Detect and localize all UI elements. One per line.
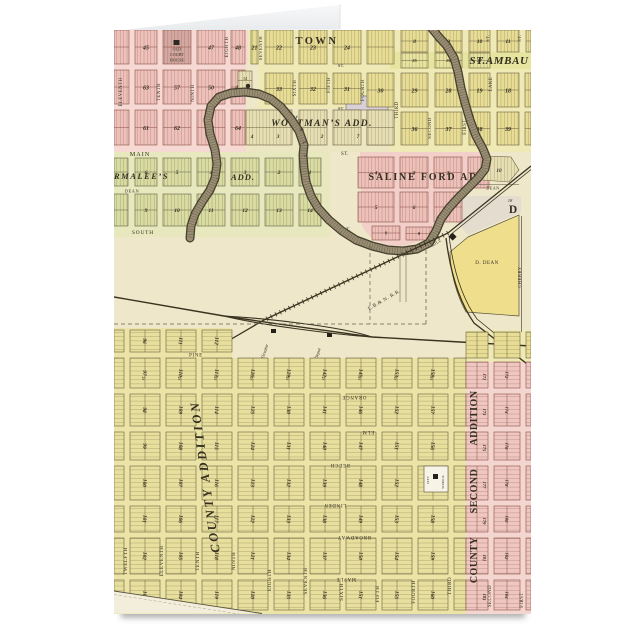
svg-text:30: 30 bbox=[377, 88, 384, 94]
svg-text:181: 181 bbox=[482, 554, 488, 561]
svg-text:ST.: ST. bbox=[394, 375, 398, 380]
svg-text:SEVENTH: SEVENTH bbox=[258, 36, 263, 61]
svg-text:39: 39 bbox=[504, 127, 511, 133]
svg-text:4: 4 bbox=[250, 134, 254, 140]
svg-text:131: 131 bbox=[285, 442, 292, 451]
svg-text:OLD: OLD bbox=[173, 47, 182, 52]
svg-text:21: 21 bbox=[251, 45, 258, 51]
svg-text:152: 152 bbox=[393, 406, 400, 415]
svg-text:ST.: ST. bbox=[517, 34, 522, 41]
svg-text:98: 98 bbox=[141, 407, 147, 413]
svg-text:LINDEN: LINDEN bbox=[324, 502, 347, 507]
svg-text:SEVENTH: SEVENTH bbox=[303, 567, 309, 594]
svg-text:135: 135 bbox=[285, 591, 292, 600]
svg-text:183: 183 bbox=[482, 593, 488, 601]
svg-text:180: 180 bbox=[504, 515, 510, 523]
svg-text:ST.: ST. bbox=[430, 375, 434, 380]
svg-text:COURT: COURT bbox=[170, 52, 185, 57]
svg-text:HOUSE: HOUSE bbox=[170, 58, 185, 63]
svg-text:11: 11 bbox=[505, 39, 510, 45]
svg-text:108: 108 bbox=[177, 442, 184, 451]
svg-text:ADD.: ADD. bbox=[230, 172, 255, 182]
svg-text:176: 176 bbox=[504, 442, 510, 450]
svg-text:FOURTH: FOURTH bbox=[411, 580, 417, 603]
svg-text:106: 106 bbox=[177, 515, 184, 524]
svg-text:7: 7 bbox=[357, 134, 360, 140]
svg-text:ST.: ST. bbox=[286, 375, 290, 380]
svg-text:182: 182 bbox=[504, 552, 510, 560]
svg-text:125: 125 bbox=[249, 406, 256, 415]
svg-text:64: 64 bbox=[235, 126, 241, 132]
svg-text:159: 159 bbox=[429, 552, 436, 561]
svg-text:10: 10 bbox=[496, 168, 502, 174]
svg-text:122: 122 bbox=[249, 515, 256, 524]
svg-text:TWELFTH: TWELFTH bbox=[123, 547, 129, 575]
svg-text:ADDITION: ADDITION bbox=[469, 390, 480, 445]
svg-text:37: 37 bbox=[445, 127, 453, 133]
svg-text:112: 112 bbox=[213, 337, 220, 346]
svg-text:33: 33 bbox=[275, 87, 282, 93]
svg-text:ST.: ST. bbox=[338, 63, 344, 68]
svg-text:123: 123 bbox=[249, 479, 256, 488]
svg-text:BROADWAY: BROADWAY bbox=[337, 534, 371, 539]
svg-text:NINTH: NINTH bbox=[231, 552, 237, 571]
svg-text:136: 136 bbox=[321, 591, 328, 600]
svg-text:RMALEE’S: RMALEE’S bbox=[113, 171, 169, 181]
svg-text:29: 29 bbox=[411, 88, 418, 94]
svg-text:63: 63 bbox=[143, 85, 149, 91]
svg-text:ST.: ST. bbox=[178, 375, 182, 380]
svg-text:148: 148 bbox=[357, 479, 364, 488]
svg-text:102: 102 bbox=[141, 552, 148, 561]
svg-text:ST.: ST. bbox=[250, 375, 254, 380]
svg-text:100: 100 bbox=[141, 479, 148, 488]
svg-text:158: 158 bbox=[429, 515, 436, 524]
svg-text:5: 5 bbox=[176, 170, 179, 176]
svg-text:3: 3 bbox=[276, 134, 280, 140]
svg-text:139: 139 bbox=[321, 479, 328, 488]
svg-text:SIXTH: SIXTH bbox=[339, 583, 345, 601]
svg-text:TENTH: TENTH bbox=[157, 83, 162, 101]
svg-text:138: 138 bbox=[321, 515, 328, 524]
svg-text:114: 114 bbox=[213, 406, 220, 415]
svg-text:ELEVENTH: ELEVENTH bbox=[119, 77, 124, 106]
svg-text:FOURTH: FOURTH bbox=[361, 79, 366, 101]
svg-text:31: 31 bbox=[343, 87, 350, 93]
svg-text:FIFTH: FIFTH bbox=[375, 586, 381, 603]
svg-text:10: 10 bbox=[174, 208, 180, 214]
svg-text:ST.AMBAU: ST.AMBAU bbox=[469, 55, 529, 67]
svg-text:137: 137 bbox=[321, 552, 328, 561]
svg-text:SECOND: SECOND bbox=[427, 117, 432, 139]
svg-text:45: 45 bbox=[142, 45, 149, 51]
svg-text:151: 151 bbox=[393, 442, 400, 451]
svg-text:ELM: ELM bbox=[362, 429, 375, 434]
svg-text:12: 12 bbox=[242, 208, 248, 214]
svg-text:D: D bbox=[509, 204, 517, 216]
svg-text:ST.: ST. bbox=[341, 152, 349, 157]
svg-text:2: 2 bbox=[320, 134, 324, 140]
svg-text:22: 22 bbox=[275, 45, 282, 51]
svg-text:6: 6 bbox=[413, 205, 416, 211]
svg-text:19: 19 bbox=[477, 88, 483, 94]
svg-text:179: 179 bbox=[482, 517, 488, 525]
svg-text:CHERRY: CHERRY bbox=[517, 266, 522, 288]
svg-text:107: 107 bbox=[177, 479, 184, 488]
svg-text:25: 25 bbox=[411, 58, 417, 63]
svg-text:ST.: ST. bbox=[214, 375, 218, 380]
svg-text:SOUTH: SOUTH bbox=[132, 230, 154, 236]
svg-text:18: 18 bbox=[508, 198, 513, 203]
svg-text:24: 24 bbox=[343, 45, 350, 51]
svg-text:171: 171 bbox=[482, 373, 488, 380]
svg-text:177: 177 bbox=[482, 481, 488, 489]
svg-text:EIGHTH: EIGHTH bbox=[225, 37, 230, 58]
svg-text:101: 101 bbox=[141, 515, 148, 524]
svg-text:149: 149 bbox=[357, 515, 364, 524]
svg-text:173: 173 bbox=[482, 408, 488, 416]
svg-text:LAKE: LAKE bbox=[489, 77, 494, 92]
svg-text:97: 97 bbox=[141, 370, 147, 376]
svg-text:TOWN: TOWN bbox=[295, 36, 338, 47]
svg-text:MAPLE: MAPLE bbox=[336, 576, 356, 581]
svg-text:115: 115 bbox=[213, 442, 220, 451]
svg-text:ST.: ST. bbox=[358, 375, 362, 380]
svg-text:11: 11 bbox=[208, 208, 213, 214]
svg-text:10: 10 bbox=[477, 39, 483, 45]
svg-text:THIRD: THIRD bbox=[447, 577, 453, 595]
svg-text:109: 109 bbox=[177, 406, 184, 415]
svg-text:50: 50 bbox=[208, 85, 214, 91]
svg-text:96: 96 bbox=[141, 338, 147, 344]
svg-text:34: 34 bbox=[243, 76, 247, 81]
svg-text:EIGHTH: EIGHTH bbox=[267, 569, 273, 591]
svg-text:32: 32 bbox=[309, 87, 316, 93]
svg-text:134: 134 bbox=[285, 552, 292, 561]
svg-text:SIXTH: SIXTH bbox=[293, 80, 298, 97]
svg-text:184: 184 bbox=[504, 591, 510, 599]
svg-text:28: 28 bbox=[445, 88, 452, 94]
svg-text:150: 150 bbox=[357, 552, 364, 561]
svg-text:SECOND: SECOND bbox=[488, 585, 493, 607]
svg-text:2: 2 bbox=[277, 170, 281, 176]
svg-text:157: 157 bbox=[429, 406, 436, 415]
svg-text:62: 62 bbox=[174, 126, 180, 132]
svg-text:13: 13 bbox=[276, 208, 282, 214]
svg-text:MAIN: MAIN bbox=[130, 151, 151, 158]
svg-text:104: 104 bbox=[177, 591, 184, 600]
svg-text:PINE: PINE bbox=[189, 354, 203, 359]
svg-text:FIFTH: FIFTH bbox=[327, 77, 332, 93]
svg-text:DEAN: DEAN bbox=[486, 186, 499, 191]
svg-text:121: 121 bbox=[249, 552, 256, 561]
svg-text:DEAN: DEAN bbox=[125, 189, 140, 194]
svg-text:47: 47 bbox=[207, 45, 215, 51]
svg-text:ST.: ST. bbox=[485, 34, 490, 41]
svg-text:133: 133 bbox=[285, 515, 292, 524]
svg-text:NINTH: NINTH bbox=[191, 84, 196, 101]
svg-text:174: 174 bbox=[504, 406, 510, 414]
svg-text:48: 48 bbox=[234, 45, 241, 51]
svg-text:155: 155 bbox=[393, 591, 400, 600]
svg-text:172: 172 bbox=[504, 371, 510, 379]
svg-text:TENTH: TENTH bbox=[195, 551, 201, 571]
svg-text:141: 141 bbox=[321, 406, 328, 415]
svg-text:FIRST: FIRST bbox=[520, 592, 525, 608]
svg-text:111: 111 bbox=[177, 337, 184, 345]
svg-text:ST.: ST. bbox=[322, 375, 326, 380]
svg-text:119: 119 bbox=[213, 591, 220, 600]
svg-text:160: 160 bbox=[429, 591, 436, 600]
svg-text:D. DEAN: D. DEAN bbox=[475, 261, 499, 266]
svg-text:132: 132 bbox=[285, 479, 292, 488]
svg-text:116: 116 bbox=[213, 479, 220, 488]
svg-text:151: 151 bbox=[357, 591, 364, 600]
svg-text:175: 175 bbox=[482, 444, 488, 452]
svg-text:154: 154 bbox=[393, 552, 400, 561]
svg-text:152: 152 bbox=[393, 479, 400, 488]
svg-text:156: 156 bbox=[429, 442, 436, 451]
svg-text:5: 5 bbox=[375, 205, 378, 211]
svg-text:8: 8 bbox=[413, 39, 416, 45]
svg-text:130: 130 bbox=[285, 406, 292, 415]
svg-text:COUNTY: COUNTY bbox=[469, 537, 480, 584]
svg-text:ELEVENTH: ELEVENTH bbox=[159, 545, 165, 576]
svg-text:CITY: CITY bbox=[426, 475, 430, 483]
svg-text:57: 57 bbox=[174, 85, 181, 91]
svg-text:178: 178 bbox=[504, 479, 510, 487]
svg-text:18: 18 bbox=[505, 88, 511, 94]
svg-text:14: 14 bbox=[307, 208, 313, 214]
svg-text:SECOND: SECOND bbox=[469, 469, 480, 514]
svg-text:THIRD: THIRD bbox=[395, 101, 400, 118]
svg-text:153: 153 bbox=[393, 515, 400, 524]
svg-text:61: 61 bbox=[143, 126, 149, 132]
svg-text:124: 124 bbox=[249, 442, 256, 451]
svg-text:SCHOOL: SCHOOL bbox=[441, 475, 445, 489]
svg-text:147: 147 bbox=[357, 442, 364, 451]
svg-text:105: 105 bbox=[177, 552, 184, 561]
svg-text:T: T bbox=[302, 154, 307, 157]
svg-text:36: 36 bbox=[411, 127, 418, 133]
svg-text:140: 140 bbox=[321, 442, 328, 451]
svg-text:120: 120 bbox=[249, 591, 256, 600]
svg-text:BEECH: BEECH bbox=[330, 462, 350, 467]
svg-text:146: 146 bbox=[357, 406, 364, 415]
svg-text:9: 9 bbox=[145, 208, 148, 214]
svg-text:99: 99 bbox=[141, 443, 147, 449]
svg-text:ST.: ST. bbox=[338, 106, 344, 111]
svg-text:ST.: ST. bbox=[142, 375, 146, 380]
svg-text:ORANGE: ORANGE bbox=[342, 394, 367, 399]
